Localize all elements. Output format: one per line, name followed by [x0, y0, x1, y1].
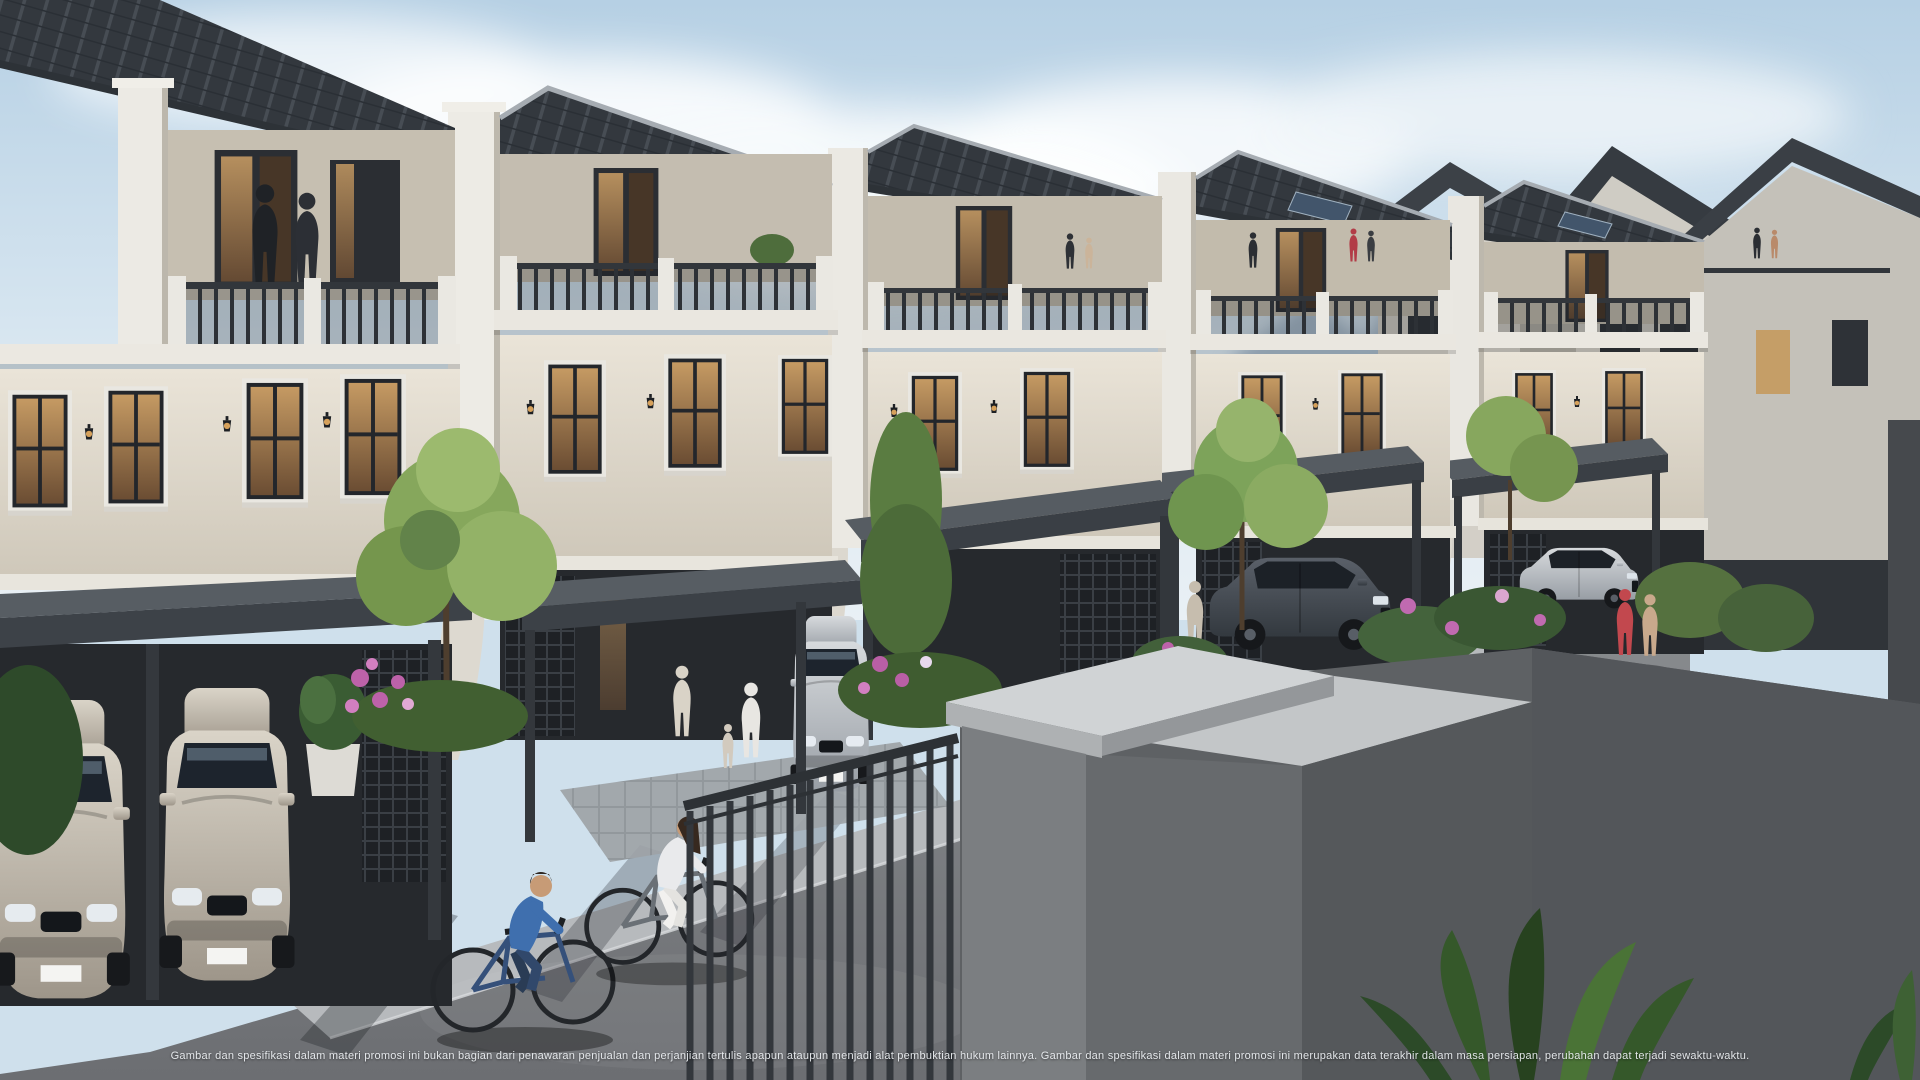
terrace-plant: [750, 234, 794, 266]
bush-right: [1718, 584, 1814, 652]
disclaimer-text: Gambar dan spesifikasi dalam materi prom…: [0, 1050, 1920, 1063]
window: [664, 354, 726, 476]
terrace-door: [956, 206, 1012, 300]
gate-pillar-and-wall: [946, 646, 1920, 1080]
planter-pot: [306, 744, 360, 796]
window: [1020, 368, 1074, 474]
architectural-render: Gambar dan spesifikasi dalam materi prom…: [0, 0, 1920, 1080]
window: [104, 386, 168, 511]
window: [544, 360, 606, 482]
window: [778, 355, 832, 461]
scene-canvas: [0, 0, 1920, 1080]
terrace-door: [594, 168, 659, 276]
window: [8, 390, 72, 515]
window: [242, 378, 308, 507]
